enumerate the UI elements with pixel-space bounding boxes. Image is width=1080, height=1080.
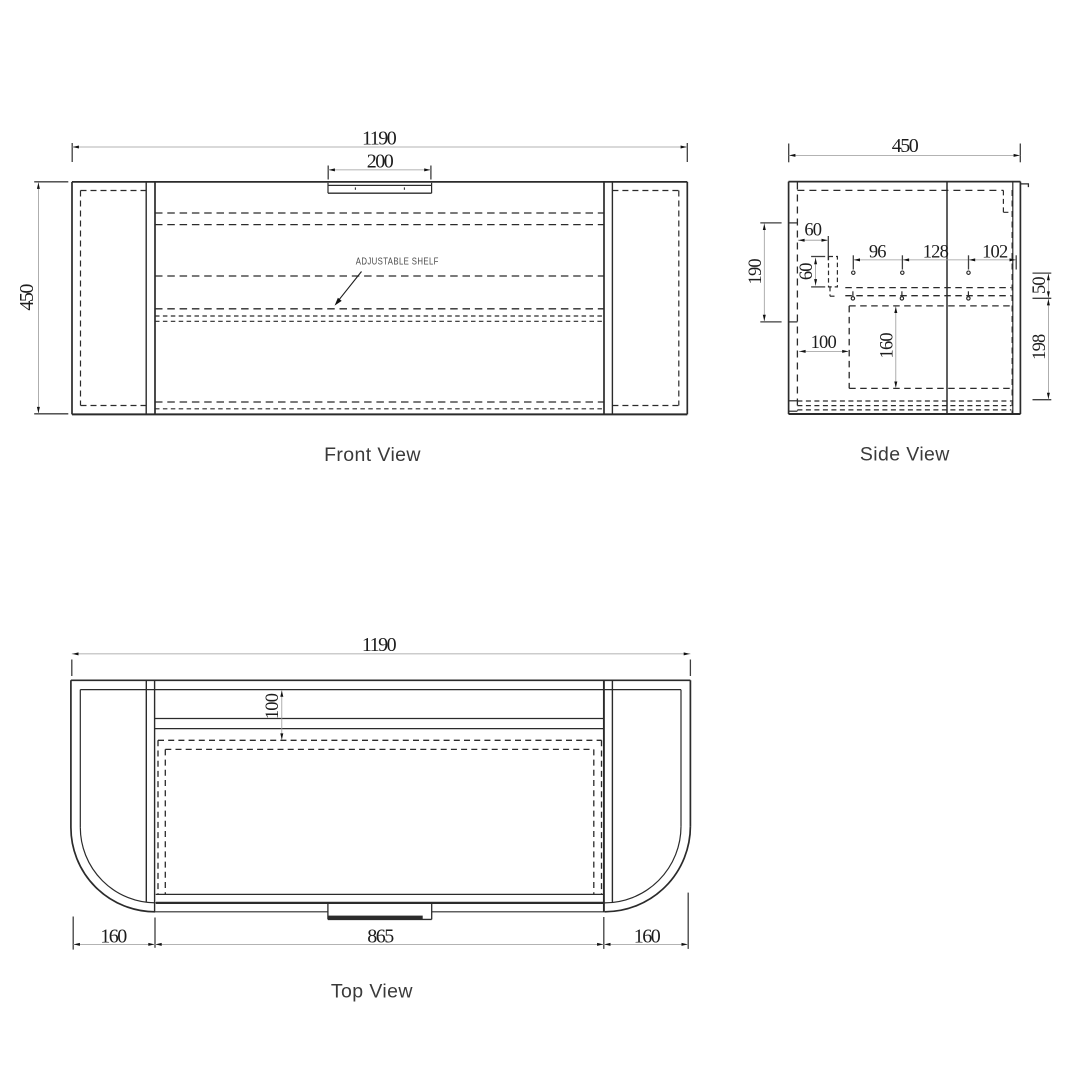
svg-text:128: 128 xyxy=(923,242,949,262)
svg-text:198: 198 xyxy=(1030,334,1050,360)
svg-text:1190: 1190 xyxy=(362,127,397,149)
svg-text:96: 96 xyxy=(869,242,886,262)
svg-text:60: 60 xyxy=(804,221,821,241)
svg-text:190: 190 xyxy=(746,259,766,285)
svg-text:Top View: Top View xyxy=(331,981,413,1003)
svg-text:100: 100 xyxy=(811,333,837,353)
svg-text:160: 160 xyxy=(634,926,661,948)
svg-text:450: 450 xyxy=(16,284,38,311)
svg-text:160: 160 xyxy=(100,926,127,948)
svg-text:Front View: Front View xyxy=(324,444,421,466)
svg-text:865: 865 xyxy=(367,926,394,948)
svg-text:450: 450 xyxy=(892,135,919,157)
svg-text:200: 200 xyxy=(367,150,394,172)
svg-text:ADJUSTABLE SHELF: ADJUSTABLE SHELF xyxy=(356,256,439,267)
svg-text:1190: 1190 xyxy=(362,634,397,656)
svg-text:50: 50 xyxy=(1030,277,1050,294)
svg-text:60: 60 xyxy=(797,263,817,280)
svg-text:102: 102 xyxy=(982,242,1008,262)
svg-text:160: 160 xyxy=(877,333,897,359)
svg-text:Side View: Side View xyxy=(860,444,950,466)
svg-text:100: 100 xyxy=(263,693,283,719)
